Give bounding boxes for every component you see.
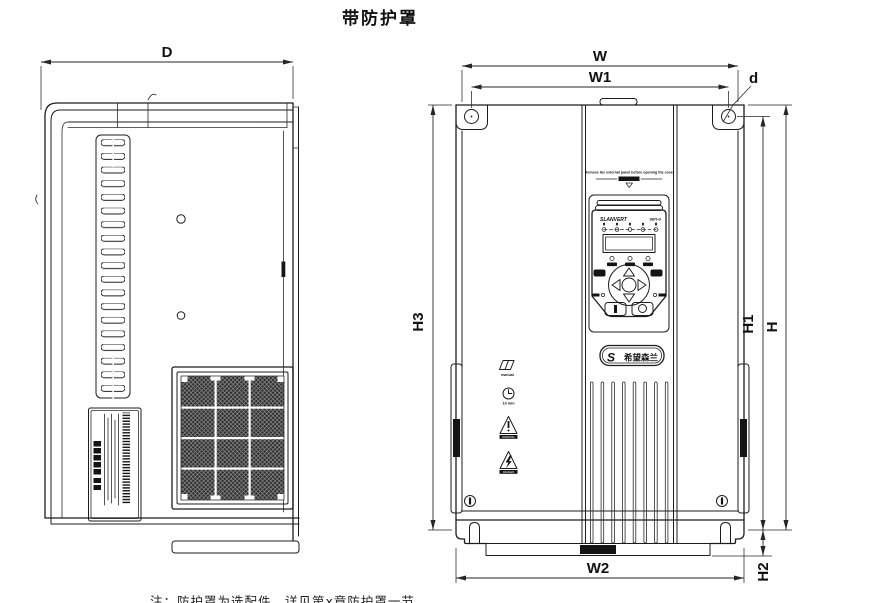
left-arrow-key[interactable] [612,280,620,291]
nameplate [89,408,142,521]
up-arrow-key[interactable] [624,268,635,276]
dim-H: H [764,322,781,333]
bottom-screw-right [717,496,728,507]
dim-H1: H1 [740,314,757,333]
dim-D: D [162,44,173,61]
keyhole-slot-left [470,523,480,544]
dim-W1: W1 [589,69,612,86]
dimensions: D W W1 d H3 H1 H H2 W2 [41,44,792,583]
cover-warning: Remove the external panel before opening… [585,171,675,188]
led-indicators [602,223,658,232]
side-screw-hole-top [177,215,185,223]
timer-label: 10 min [502,402,515,406]
page-title: 带防护罩 [342,8,418,29]
warning-label: WARNING [502,435,514,439]
side-latch-mark [282,262,286,278]
logo-s-glyph: S [607,351,615,365]
dim-W2: W2 [587,560,610,577]
front-view: Remove the external panel before opening… [451,99,749,556]
keyhole-slot-right [721,523,731,544]
manual-icon: manual [500,361,515,378]
logo-text: 希望森兰 [624,353,659,364]
side-top-mark [148,94,156,100]
dim-H2: H2 [755,562,772,581]
manual-label: manual [501,373,514,377]
cover-icons: manual 10 min WARNING DANGER [500,361,518,475]
dim-d: d [749,70,758,87]
dim-H3: H3 [410,312,427,331]
danger-icon: DANGER [500,452,518,475]
footnote: 注：防护罩为选配件，详见第x章防护罩一节 [150,594,415,603]
keypad-brand: SLANVERT [600,217,628,223]
down-arrow-key[interactable] [624,294,635,302]
dim-W: W [593,48,608,65]
heatsink-ribs [590,382,667,543]
side-edge-mark [36,195,38,204]
stop-icon [639,305,647,313]
technical-drawing: 带防护罩 [0,0,891,603]
cover-warning-text: Remove the external panel before opening… [585,171,675,175]
run-icon [614,305,617,313]
enter-key[interactable] [622,278,636,292]
right-arrow-key[interactable] [638,280,646,291]
keypad: SLANVERT SB70-G [592,201,666,317]
bottom-screw-left [465,496,476,507]
brand-logo: S 希望森兰 [600,346,664,366]
nameplate-barcode [123,413,131,505]
drawing-page: 带防护罩 [0,0,891,603]
warning-icon: WARNING [500,417,518,440]
fan-grille [172,367,293,509]
side-bottom-plate [172,541,299,553]
timer-icon: 10 min [502,388,515,406]
left-key[interactable] [594,270,606,277]
dpad[interactable] [609,265,650,306]
side-screw-hole-bottom [177,312,185,320]
side-view [36,94,299,553]
danger-label: DANGER [503,470,514,474]
gland-plate-latch [580,545,616,554]
foot-right [710,520,744,544]
keypad-model: SB70-G [649,218,661,222]
top-tab [600,99,637,106]
right-key[interactable] [651,270,663,277]
